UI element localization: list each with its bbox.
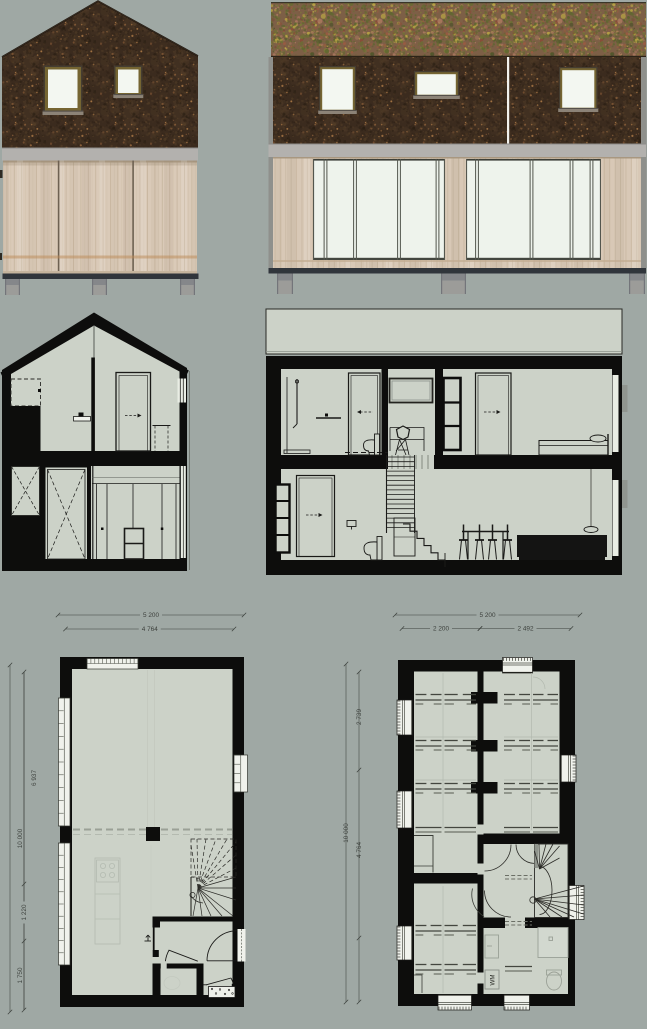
svg-text:1 750: 1 750	[17, 967, 24, 983]
svg-text:2 739: 2 739	[356, 709, 363, 725]
svg-text:2 200: 2 200	[433, 626, 449, 633]
svg-text:4 764: 4 764	[356, 842, 363, 858]
svg-text:5 200: 5 200	[480, 612, 496, 619]
svg-text:2 492: 2 492	[518, 626, 534, 633]
svg-text:WM: WM	[490, 975, 497, 986]
svg-text:4 764: 4 764	[142, 626, 158, 633]
svg-text:6 937: 6 937	[31, 770, 38, 786]
svg-text:10 000: 10 000	[17, 828, 24, 848]
svg-text:10 000: 10 000	[343, 823, 350, 843]
svg-text:1 220: 1 220	[21, 904, 28, 920]
svg-text:5 200: 5 200	[143, 612, 159, 619]
